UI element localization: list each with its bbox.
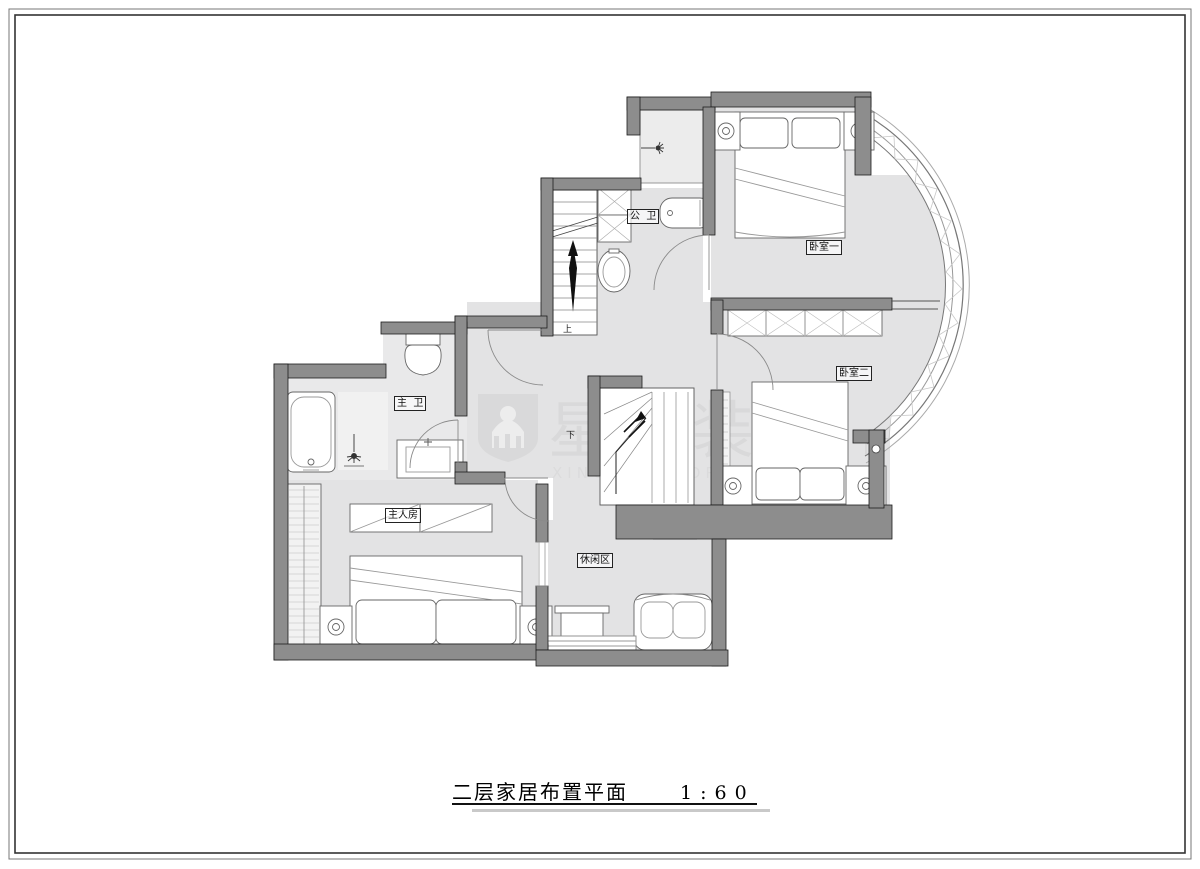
floor-plan-page: 星艺装饰 XINGYI DECORATION (0, 0, 1200, 869)
plan-scale: 1:60 (680, 782, 755, 804)
title-underline (452, 803, 757, 805)
room-label-leisure: 休闲区 (577, 553, 613, 568)
room-label-bedroom1: 卧室一 (806, 240, 842, 255)
stair-up-label: 上 (563, 322, 572, 335)
room-label-master-bath: 主 卫 (394, 396, 426, 411)
room-label-master-room: 主人房 (385, 508, 421, 523)
title-row: 二层家居布置平面1:60 (452, 776, 782, 805)
watermark-logo-icon (478, 394, 538, 462)
bathtub (287, 392, 335, 472)
wardrobe (350, 504, 492, 532)
stair-down-label: 下 (566, 428, 575, 441)
bed-master (350, 556, 522, 648)
bed-bedroom2 (752, 382, 848, 504)
room-label-bedroom2: 卧室二 (836, 366, 872, 381)
toilet (405, 333, 441, 375)
sofa (634, 594, 712, 650)
stair-upper (549, 190, 601, 335)
floor-plan-svg: 星艺装饰 XINGYI DECORATION (0, 0, 1200, 869)
vanity-sink (397, 438, 463, 478)
window-leisure (546, 636, 636, 650)
title-underline-secondary (472, 809, 770, 812)
sliding-door-wardrobe (287, 484, 321, 648)
room-label-public-bath: 公 卫 (627, 209, 659, 224)
plan-title: 二层家居布置平面 (452, 776, 628, 805)
closet-strip (728, 310, 882, 336)
bed-bedroom1 (735, 112, 845, 238)
washbasin (598, 249, 630, 292)
